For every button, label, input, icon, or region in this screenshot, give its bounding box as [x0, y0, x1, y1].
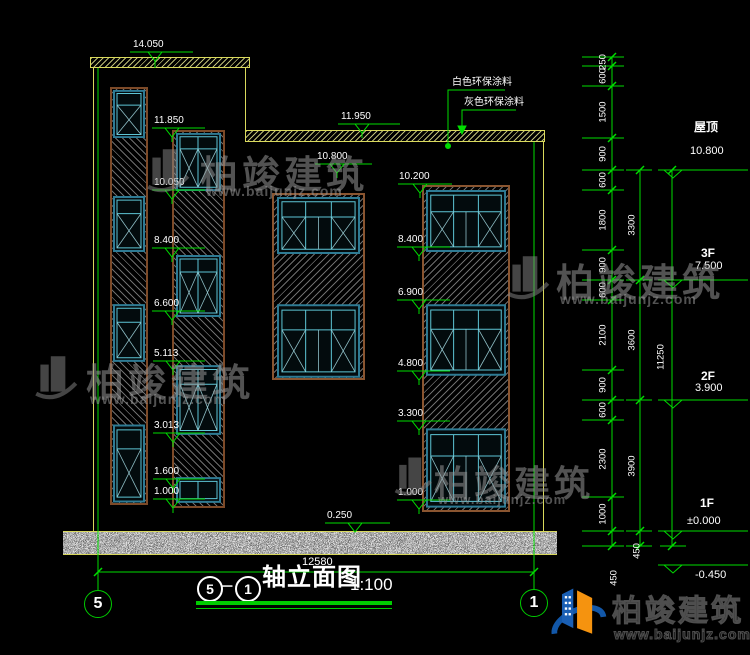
dim-chain2-label: 3300 [627, 214, 638, 235]
dim-chain1-label: 1800 [598, 209, 609, 230]
elevation-label-1600: 1.600 [154, 466, 179, 477]
company-logo-url: www.baijunjz.com [614, 626, 750, 642]
elevation-label-1000-left: 1.000 [154, 486, 179, 497]
dim-chain1-label: 2300 [598, 448, 609, 469]
elevation-label-8400-left: 8.400 [154, 235, 179, 246]
watermark-url: www.baijunjz.com [438, 492, 566, 507]
floor-label-1f: 1F [700, 498, 714, 509]
floor-elev-base: -0.450 [695, 570, 726, 581]
dim-chain2-label: 3600 [627, 329, 638, 350]
watermark-logo-icon [502, 250, 554, 302]
dim-chain1-label: 600 [598, 402, 609, 418]
elevation-label-4800: 4.800 [398, 358, 423, 369]
elevation-label-11950: 11.950 [341, 111, 371, 122]
dim-chain1-label: 900 [598, 377, 609, 393]
watermark-url: www.baijunjz.com [90, 391, 227, 407]
floor-label-roof: 屋顶 [694, 122, 718, 133]
drawing-title: 轴立面图 [262, 572, 362, 583]
elevation-label-0250: 0.250 [327, 510, 352, 521]
dim-chain1-label: 600 [598, 68, 609, 84]
title-axis-dash: － [221, 581, 234, 592]
elevation-label-6600: 6.600 [154, 298, 179, 309]
floor-label-2f: 2F [701, 371, 715, 382]
watermark-url: www.baijunjz.com [560, 291, 697, 307]
axis-bubble-5: 5 [84, 590, 112, 618]
watermark-logo-icon [142, 143, 194, 195]
title-underline-2 [196, 608, 392, 609]
dim-chain2-label: 450 [632, 543, 643, 559]
watermark-logo-icon [390, 452, 436, 498]
title-underline [196, 601, 392, 605]
floor-elev-roof: 10.800 [690, 146, 724, 157]
elevation-label-10200: 10.200 [399, 171, 430, 182]
elevation-label-14050: 14.050 [133, 39, 164, 50]
title-axis-circle-1: 1 [235, 576, 261, 602]
axis-bubble-1: 1 [520, 589, 548, 617]
elevation-drawing-canvas: 14.050 11.950 11.850 10.800 10.200 10.05… [0, 0, 750, 655]
note-gray-paint: 灰色环保涂料 [464, 97, 524, 108]
dim-chain1-label: 1500 [598, 101, 609, 122]
note-white-paint: 白色环保涂料 [452, 77, 512, 88]
elevation-label-11850: 11.850 [154, 115, 184, 126]
dim-chain1-label: 2100 [598, 324, 609, 345]
floor-elev-1f: ±0.000 [687, 516, 721, 527]
dim-chain1-label: 600 [598, 172, 609, 188]
watermark-logo-icon [30, 350, 82, 402]
elevation-label-3300: 3.300 [398, 408, 423, 419]
elevation-label-8400-right: 8.400 [398, 234, 423, 245]
floor-elev-2f: 3.900 [695, 383, 723, 394]
title-axis-circle-5: 5 [197, 576, 223, 602]
drawing-scale: 1:100 [350, 579, 393, 590]
elevation-label-6900: 6.900 [398, 287, 423, 298]
dim-chain1-label: 1000 [598, 503, 609, 524]
company-logo-icon [545, 578, 611, 650]
watermark-url: www.baijunjz.com [206, 183, 343, 199]
elevation-label-3013: 3.013 [154, 420, 179, 431]
dim-chain1-label: 900 [598, 146, 609, 162]
company-logo-brand: 柏竣建筑 [612, 586, 744, 630]
dim-chain2-label: 3900 [627, 455, 638, 476]
dim-chain-total-label: 11250 [656, 344, 667, 370]
